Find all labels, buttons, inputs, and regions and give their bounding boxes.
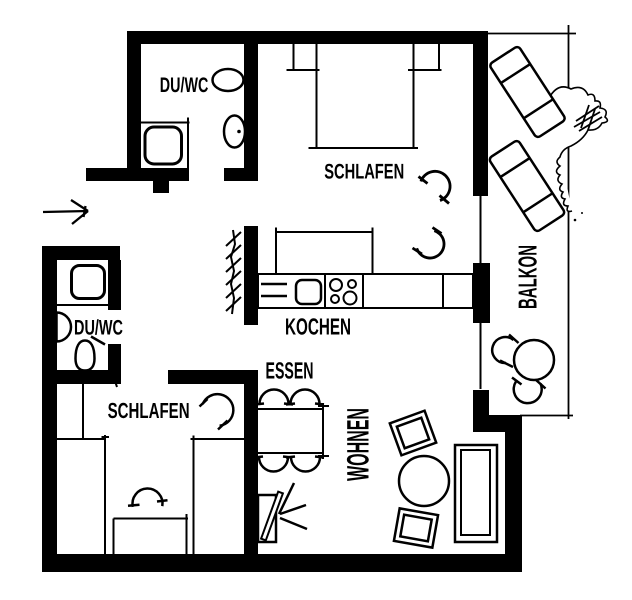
- svg-text:ESSEN: ESSEN: [266, 358, 314, 384]
- svg-text:KOCHEN: KOCHEN: [285, 314, 351, 340]
- svg-text:DU/WC: DU/WC: [74, 317, 123, 340]
- svg-text:SCHLAFEN: SCHLAFEN: [108, 398, 190, 423]
- svg-text:WOHNEN: WOHNEN: [341, 408, 376, 481]
- svg-text:DU/WC: DU/WC: [160, 74, 209, 97]
- svg-text:SCHLAFEN: SCHLAFEN: [324, 161, 404, 184]
- svg-text:BALKON: BALKON: [513, 245, 543, 309]
